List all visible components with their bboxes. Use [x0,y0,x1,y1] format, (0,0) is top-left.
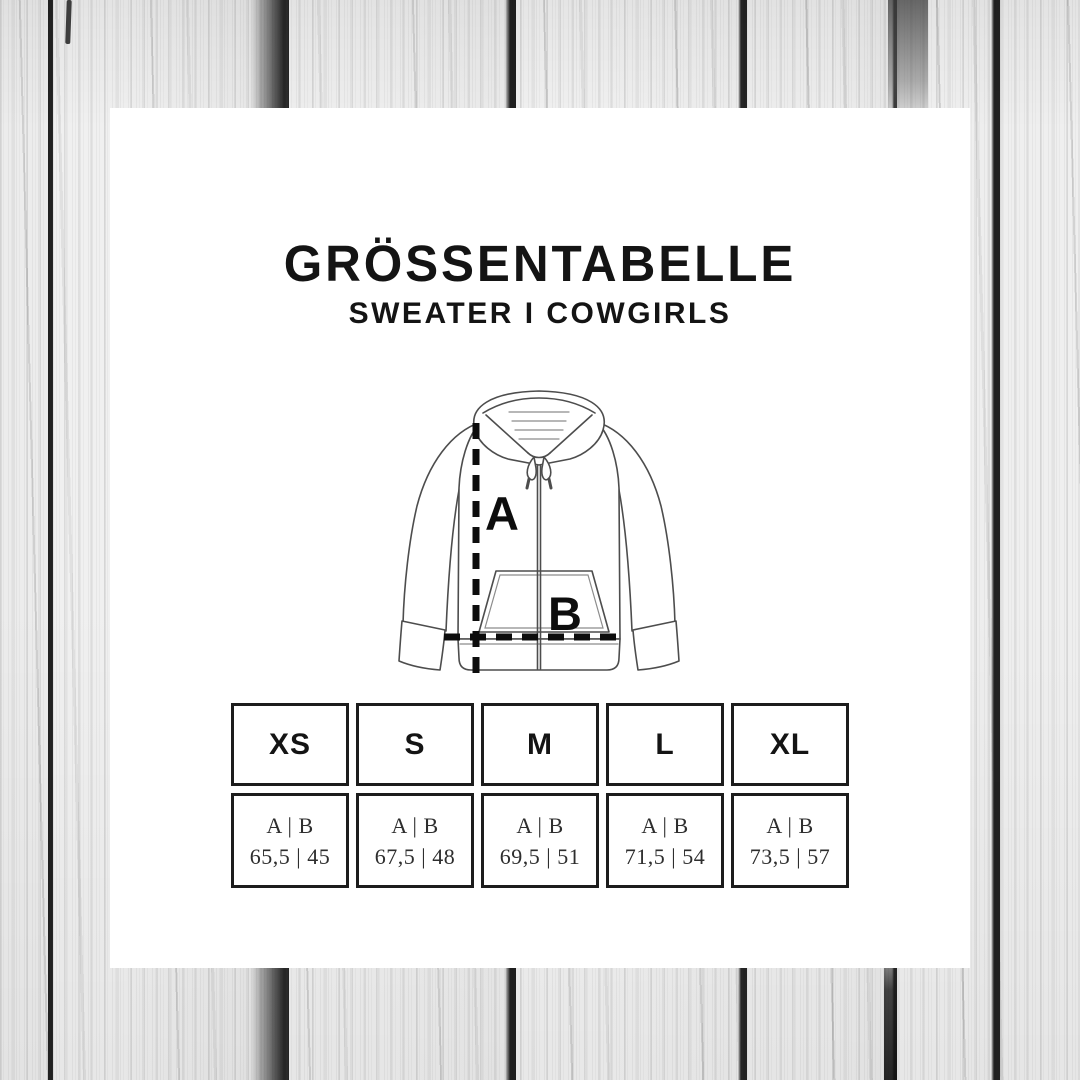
measure-label: A | B [766,810,813,841]
measure-label: A | B [266,810,313,841]
size-values-cell-s: A | B 67,5 | 48 [356,793,474,888]
measurement-b-label: B [548,587,582,640]
size-header-cell-xl: XL [731,703,849,786]
measurement-a-label: A [485,487,519,540]
hoodie-line-drawing: A B [386,380,692,678]
size-header-row: XS S M L XL [231,703,849,786]
measure-values: 71,5 | 54 [625,841,705,872]
measure-values: 65,5 | 45 [250,841,330,872]
size-values-row: A | B 65,5 | 45 A | B 67,5 | 48 A | B 69… [231,793,849,888]
measure-label: A | B [391,810,438,841]
page-title: GRÖSSENTABELLE [123,234,957,293]
hoodie-diagram: A B [386,380,692,678]
measure-label: A | B [516,810,563,841]
page-subtitle: SWEATER I COWGIRLS [110,297,970,331]
size-header-cell-s: S [356,703,474,786]
measure-values: 73,5 | 57 [750,841,830,872]
hoodie-left-cuff [399,621,445,670]
hoodie-right-cuff [633,621,679,670]
measure-label: A | B [641,810,688,841]
size-values-cell-xs: A | B 65,5 | 45 [231,793,349,888]
measure-values: 69,5 | 51 [500,841,580,872]
size-header-cell-l: L [606,703,724,786]
size-header-cell-xs: XS [231,703,349,786]
size-values-cell-xl: A | B 73,5 | 57 [731,793,849,888]
size-table: XS S M L XL A | B 65,5 | 45 A | B 67,5 |… [110,703,970,888]
size-chart-card: GRÖSSENTABELLE SWEATER I COWGIRLS [110,108,970,968]
measure-values: 67,5 | 48 [375,841,455,872]
size-header-cell-m: M [481,703,599,786]
size-values-cell-m: A | B 69,5 | 51 [481,793,599,888]
size-values-cell-l: A | B 71,5 | 54 [606,793,724,888]
